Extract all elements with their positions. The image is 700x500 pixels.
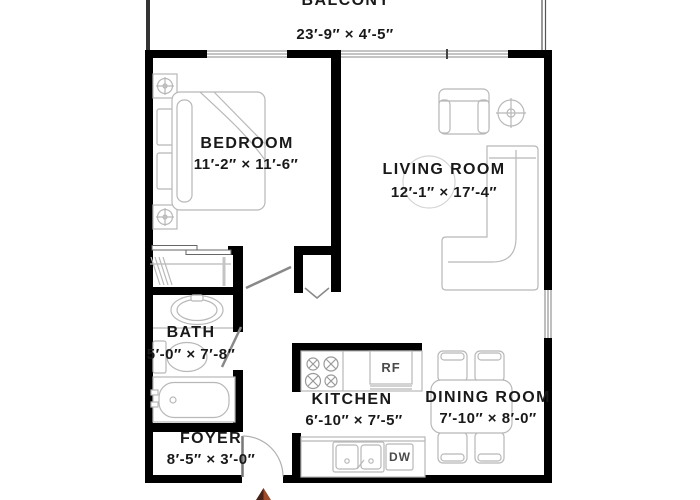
bedroom-light-icon [153, 74, 177, 98]
bath-dims: 5′-0″ × 7′-8″ [147, 347, 236, 362]
living-room-label: LIVING ROOM [383, 162, 506, 178]
dining-room-dims: 7′-10″ × 8′-0″ [439, 411, 536, 426]
bedroom-dims: 11′-2″ × 11′-6″ [194, 157, 299, 172]
balcony-dims: 23′-9″ × 4′-5″ [296, 27, 393, 42]
foyer-dims: 8′-5″ × 3′-0″ [167, 452, 256, 467]
sliding-closet-door-icon [152, 246, 231, 255]
bedroom-label: BEDROOM [200, 136, 293, 152]
bathtub-icon [151, 377, 235, 422]
closet-hangers-icon [150, 257, 231, 286]
bath-label: BATH [167, 325, 216, 341]
foyer-label: FOYER [180, 431, 242, 447]
kitchen-dims: 6′-10″ × 7′-5″ [305, 413, 402, 428]
dining-room-label: DINING ROOM [425, 390, 551, 406]
living-room-dims: 12′-1″ × 17′-4″ [391, 185, 497, 200]
dishwasher-label: DW [389, 451, 411, 463]
kitchen-label: KITCHEN [312, 392, 393, 408]
bedroom-door-icon [246, 267, 291, 288]
dining-set-icon [431, 351, 512, 463]
bifold-door-icon [305, 288, 329, 298]
floor-plan: BALCONY 23′-9″ × 4′-5″ BEDROOM 11′-2″ × … [0, 0, 700, 500]
north-arrow-icon [256, 488, 271, 500]
bedroom-light2-icon [153, 205, 177, 229]
balcony-label: BALCONY [302, 0, 391, 9]
refrigerator-label: RF [381, 361, 400, 374]
armchair-icon [439, 89, 489, 134]
living-light-icon [496, 98, 526, 128]
